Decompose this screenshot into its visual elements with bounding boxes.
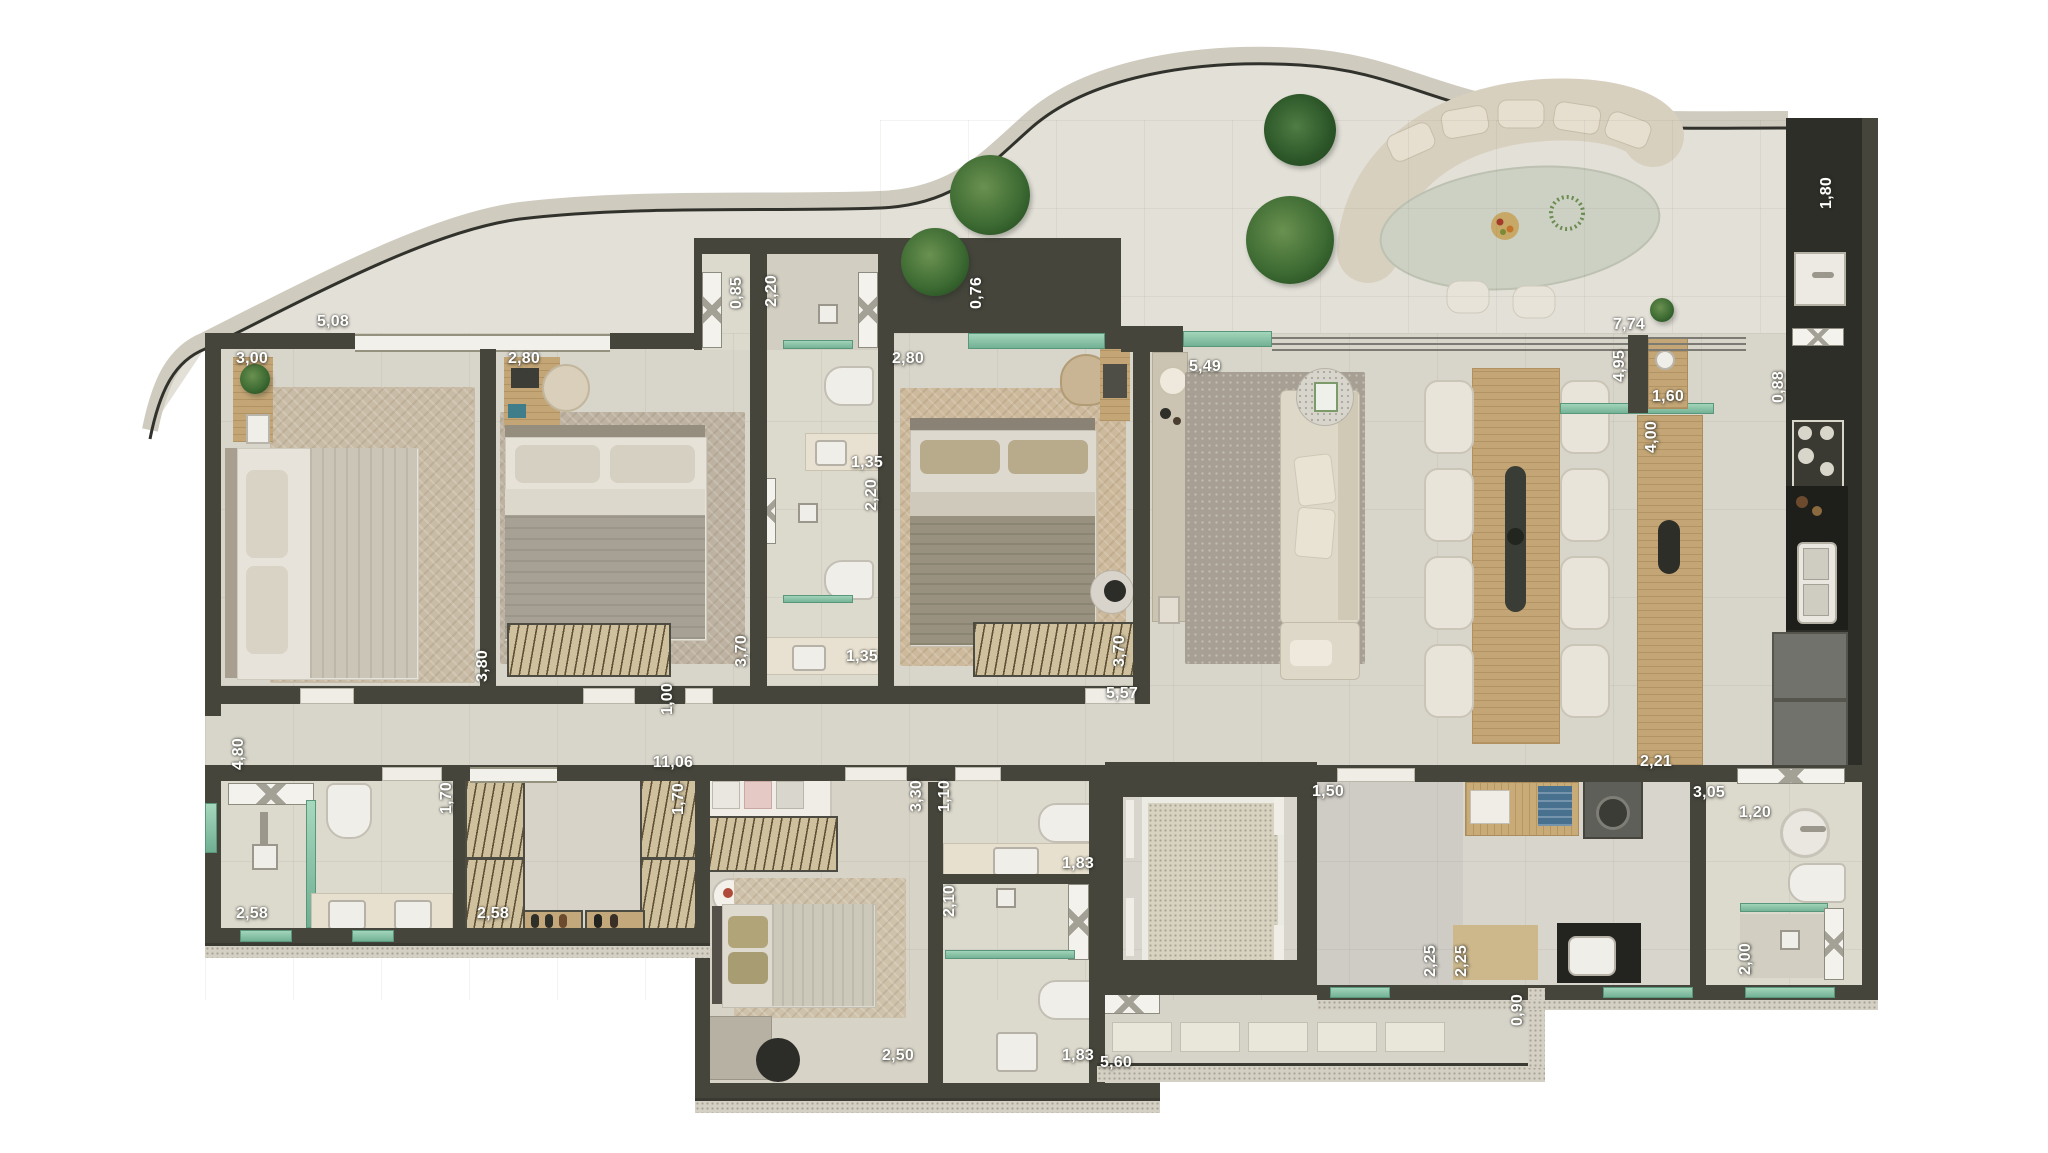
condenser-unit — [1180, 1022, 1240, 1052]
maidbath-window-hatch — [1737, 768, 1845, 784]
terrace-chair — [1447, 281, 1489, 313]
elevator-door — [1274, 797, 1284, 835]
living-vase — [1173, 417, 1181, 425]
wall — [694, 238, 702, 350]
dimension-label: 2,50 — [882, 1047, 914, 1065]
bedroom3-speaker — [1103, 364, 1127, 398]
wall-bed3-living — [1133, 333, 1150, 686]
dimension-label: 1,35 — [851, 454, 883, 472]
bedroom1-bed-headboard — [225, 448, 237, 678]
masterbath-shower-head — [252, 844, 278, 870]
hall-floor — [1317, 780, 1463, 985]
sink-basin — [1803, 584, 1829, 616]
dimension-label: 4,00 — [1643, 421, 1661, 453]
door-bathB — [685, 688, 713, 704]
elevator-wall — [1105, 977, 1317, 995]
terrace-palm — [1264, 94, 1336, 166]
wall-outer-left — [205, 333, 221, 716]
elevator-wall — [1105, 762, 1123, 995]
dimension-label: 4,95 — [1611, 350, 1629, 382]
fridge — [1772, 632, 1848, 700]
door-hall — [1337, 768, 1415, 782]
bottle — [1812, 506, 1822, 516]
kitchen-island — [1637, 415, 1703, 773]
door-service-bedroom — [845, 767, 907, 781]
burner — [1820, 462, 1834, 476]
dimension-label: 1,50 — [1312, 783, 1344, 801]
burner — [1798, 426, 1812, 440]
island-sink — [1658, 520, 1680, 574]
closet-085-door — [702, 272, 722, 348]
dimension-label: 2,80 — [508, 350, 540, 368]
dimension-label: 11,06 — [653, 754, 693, 772]
laundry-basket — [1470, 790, 1510, 824]
dimension-label: 0,76 — [968, 277, 986, 309]
shelf-towel — [776, 781, 804, 809]
dimension-label: 1,70 — [670, 783, 688, 815]
dimension-label: 1,10 — [936, 780, 954, 812]
dining-chair — [1424, 468, 1474, 542]
deck-edge — [1097, 1066, 1545, 1082]
burner — [1820, 426, 1834, 440]
living-lamp — [1158, 366, 1188, 396]
dimension-label: 2,20 — [763, 275, 781, 307]
dimension-label: 1,70 — [438, 782, 456, 814]
bathA-shower-door — [858, 272, 878, 348]
masterbath-sink — [328, 900, 366, 930]
dimension-label: 5,49 — [1189, 358, 1221, 376]
wall-service-north — [710, 765, 1105, 781]
dimension-label: 1,35 — [846, 648, 878, 666]
service-sink — [1568, 936, 1616, 976]
shoes — [594, 914, 602, 928]
bedroom2-chair — [542, 364, 590, 412]
dimension-label: 0,85 — [728, 277, 746, 309]
bathD-sink — [996, 1032, 1038, 1072]
service-hatch-door — [1794, 252, 1846, 306]
dimension-label: 3,00 — [236, 350, 268, 368]
dimension-label: 4,80 — [230, 738, 248, 770]
dimension-label: 1,80 — [1818, 177, 1836, 209]
elevator-wall-inner — [1123, 780, 1297, 797]
dimension-label: 0,88 — [1770, 371, 1788, 403]
bedroom3-pillow — [920, 440, 1000, 474]
bathD-toilet — [1038, 980, 1096, 1020]
elevator-car — [1142, 797, 1284, 975]
maidbath-glass-shelf — [1740, 903, 1828, 912]
elevator-rail — [1126, 800, 1134, 858]
elevator-door — [1274, 925, 1284, 963]
bathA-sink — [815, 440, 847, 466]
bedroom1-blanket — [310, 448, 417, 678]
wall-servicebed-baths — [928, 782, 943, 1083]
dimension-label: 1,00 — [659, 683, 677, 715]
servicebed-blanket — [772, 904, 874, 1006]
dining-chair — [1424, 380, 1474, 454]
masterbath-window — [240, 930, 292, 942]
sink-basin — [1803, 548, 1829, 580]
dimension-label: 2,10 — [941, 885, 959, 917]
wall — [766, 238, 878, 254]
dimension-label: 3,70 — [733, 635, 751, 667]
sideboard-plant — [1650, 298, 1674, 322]
bedroom3-sheet-fold — [910, 492, 1095, 516]
maidbath-basin — [1780, 808, 1830, 858]
bathB-shower-head — [798, 503, 818, 523]
dimension-label: 2,21 — [1640, 753, 1672, 771]
servicebed-wardrobe — [706, 816, 838, 872]
dimension-label: 5,57 — [1106, 685, 1138, 703]
servicebed-headboard — [712, 906, 722, 1004]
dimension-label: 5,08 — [317, 313, 349, 331]
terrace-chair — [1513, 286, 1555, 318]
living-chaise-pillow — [1290, 640, 1332, 666]
dining-bowl — [1507, 528, 1524, 545]
wall-stub — [1121, 326, 1183, 352]
bathB-glass-shelf — [783, 595, 853, 603]
door-bathC — [955, 767, 1001, 781]
plate-flowers — [723, 888, 733, 898]
wall-bed2-bath — [750, 238, 767, 700]
closet-wardrobe — [465, 779, 525, 859]
floor-plan: 5,083,002,800,852,200,762,801,807,744,95… — [0, 0, 2048, 1153]
living-frame — [1158, 596, 1180, 624]
condenser-unit — [1317, 1022, 1377, 1052]
dimension-label: 3,05 — [1693, 784, 1725, 802]
bathC-toilet — [1038, 803, 1096, 843]
condenser-unit — [1248, 1022, 1308, 1052]
sliding-door-track — [1272, 349, 1746, 351]
wall-bathC-bathD — [943, 874, 1089, 884]
wall-suite-service — [695, 765, 710, 1105]
bedroom2-notebook — [508, 404, 526, 418]
laundry-towels — [1538, 786, 1572, 826]
window-sill — [1330, 987, 1390, 998]
dimension-label: 3,80 — [474, 650, 492, 682]
masterbath-window-west — [205, 803, 217, 853]
servicebed-pillow — [728, 916, 768, 948]
masterbath-shower-arm — [260, 812, 268, 844]
masterbath-window — [352, 930, 394, 942]
bottle — [1796, 496, 1808, 508]
dimension-label: 2,25 — [1422, 945, 1440, 977]
kitchen-cabinet-hatch — [1792, 328, 1844, 346]
bathC-sink — [993, 847, 1039, 876]
dining-chair — [1560, 556, 1610, 630]
terrace-plant — [950, 155, 1030, 235]
bathD-shower-door — [1068, 884, 1089, 960]
burner — [1798, 448, 1814, 464]
elevator-wall-inner — [1123, 960, 1297, 977]
bathA-shower-head — [818, 304, 838, 324]
sliding-door-track — [1272, 337, 1746, 339]
wall — [610, 333, 702, 349]
dimension-label: 1,83 — [1062, 1047, 1094, 1065]
wall-bed1-bed2 — [480, 349, 496, 686]
door-bedroom1 — [300, 688, 354, 704]
bedroom2-pillow — [610, 445, 695, 483]
shelf-towel-pink — [744, 781, 772, 809]
shelf-towel — [712, 781, 740, 809]
dimension-label: 1,60 — [1652, 388, 1684, 406]
dimension-label: 2,00 — [1737, 943, 1755, 975]
bedroom2-laptop — [511, 368, 539, 388]
bedroom3-pillow — [1008, 440, 1088, 474]
living-sofa-pillow — [1293, 453, 1337, 507]
living-window — [1183, 331, 1272, 347]
maidbath-faucet — [1800, 826, 1826, 832]
living-sofa-pillow — [1294, 506, 1336, 559]
masterbath-toilet — [326, 783, 372, 839]
dimension-label: 7,74 — [1613, 316, 1645, 334]
bedroom3-bed-headboard — [910, 418, 1095, 430]
wall-outer-right — [1862, 118, 1878, 1000]
terrace-plant — [1246, 196, 1334, 284]
maidbath-shower-door — [1824, 908, 1844, 980]
masterbath-sink — [394, 900, 432, 930]
bathA-glass-shelf — [783, 340, 853, 349]
wall — [1105, 238, 1121, 349]
dining-chair — [1560, 468, 1610, 542]
bedroom3-decor-sphere — [1104, 580, 1126, 602]
shoes — [559, 914, 567, 928]
wall — [205, 333, 355, 349]
bathD-glass-shelf — [945, 950, 1075, 959]
terrace-plant — [901, 228, 969, 296]
dining-chair — [1424, 644, 1474, 718]
bedroom1-frame — [246, 414, 270, 444]
dining-chair — [1424, 556, 1474, 630]
maidbath-shower-head — [1780, 930, 1800, 950]
condenser-unit — [1385, 1022, 1445, 1052]
door-master-suite — [382, 767, 442, 781]
condenser-unit — [1112, 1022, 1172, 1052]
sliding-door-track — [1272, 343, 1746, 345]
shoes — [531, 914, 539, 928]
dimension-label: 1,83 — [1062, 855, 1094, 873]
dimension-label: 3,30 — [908, 780, 926, 812]
dimension-label: 2,80 — [892, 350, 924, 368]
dimension-label: 0,90 — [1509, 994, 1527, 1026]
dimension-label: 3,70 — [1111, 635, 1129, 667]
shoes — [610, 914, 618, 928]
deck-edge — [205, 946, 710, 958]
freezer — [1772, 700, 1848, 768]
bedroom1-pillow — [246, 470, 288, 558]
elevator-rail — [1126, 898, 1134, 956]
bedroom2-pillow — [515, 445, 600, 483]
bathB-sink — [792, 645, 826, 671]
closet-window — [470, 767, 557, 783]
bathA-toilet — [824, 366, 874, 406]
bedroom2-wardrobe — [507, 623, 671, 677]
deck-edge — [1317, 1000, 1878, 1010]
dining-chair — [1560, 380, 1610, 454]
bedroom2-blanket — [505, 515, 705, 639]
dimension-label: 2,58 — [477, 905, 509, 923]
washer-door — [1596, 796, 1630, 830]
window-sill — [1603, 987, 1693, 998]
fruit-bowl — [1491, 212, 1519, 240]
bedroom2-sheet-fold — [505, 489, 705, 515]
living-vase — [1160, 408, 1171, 419]
door-bedroom2 — [583, 688, 635, 704]
bedroom1-pillow — [246, 566, 288, 654]
sideboard-plates — [1655, 350, 1675, 370]
bedroom1-plant — [240, 364, 270, 394]
masterbath-cabinet — [228, 783, 314, 805]
dimension-label: 1,20 — [1739, 804, 1771, 822]
dimension-label: 2,20 — [863, 479, 881, 511]
closet-wardrobe — [640, 858, 699, 934]
shoes — [545, 914, 553, 928]
wall-baths-east — [1089, 765, 1105, 1083]
servicebed-pillow — [728, 952, 768, 984]
living-sofa-back — [1338, 392, 1358, 620]
wall-outer-left — [205, 765, 221, 945]
dimension-label: 5,60 — [1100, 1054, 1132, 1072]
maidbath-toilet — [1788, 863, 1846, 903]
dining-chair — [1560, 644, 1610, 718]
bedroom2-bed-headboard — [505, 425, 705, 437]
bathD-shower-head — [996, 888, 1016, 908]
bathB-toilet — [824, 560, 874, 600]
elevator-wall — [1105, 762, 1317, 780]
window-sill — [1745, 987, 1835, 998]
servicebed-chair — [756, 1038, 800, 1082]
wall-kitchen-stub — [1628, 335, 1648, 413]
living-table-decor — [1314, 382, 1338, 412]
deck-edge — [695, 1101, 1160, 1113]
dimension-label: 2,58 — [236, 905, 268, 923]
bedroom3-window — [968, 333, 1105, 349]
hatch-handle — [1812, 272, 1834, 278]
dimension-label: 2,25 — [1453, 945, 1471, 977]
